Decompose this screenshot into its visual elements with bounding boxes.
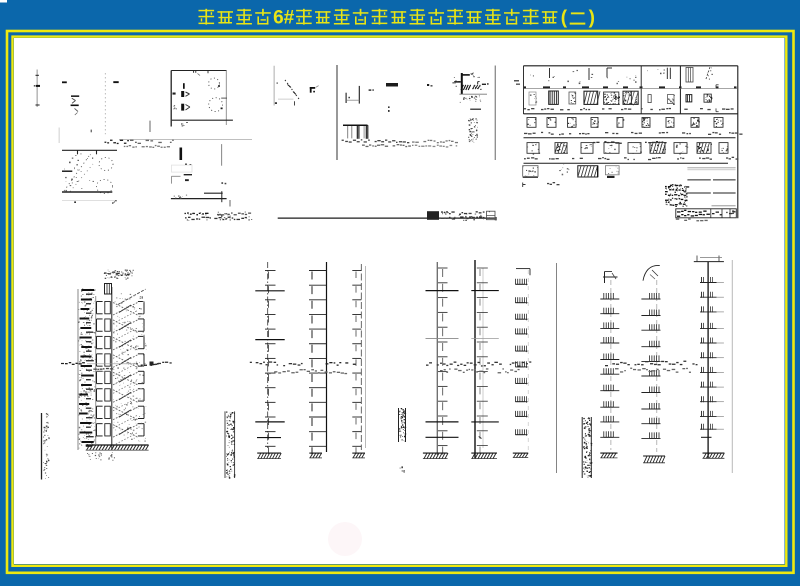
svg-text:(: ( [561, 8, 568, 29]
svg-text:): ) [589, 8, 595, 29]
svg-text:6#: 6# [273, 7, 295, 28]
